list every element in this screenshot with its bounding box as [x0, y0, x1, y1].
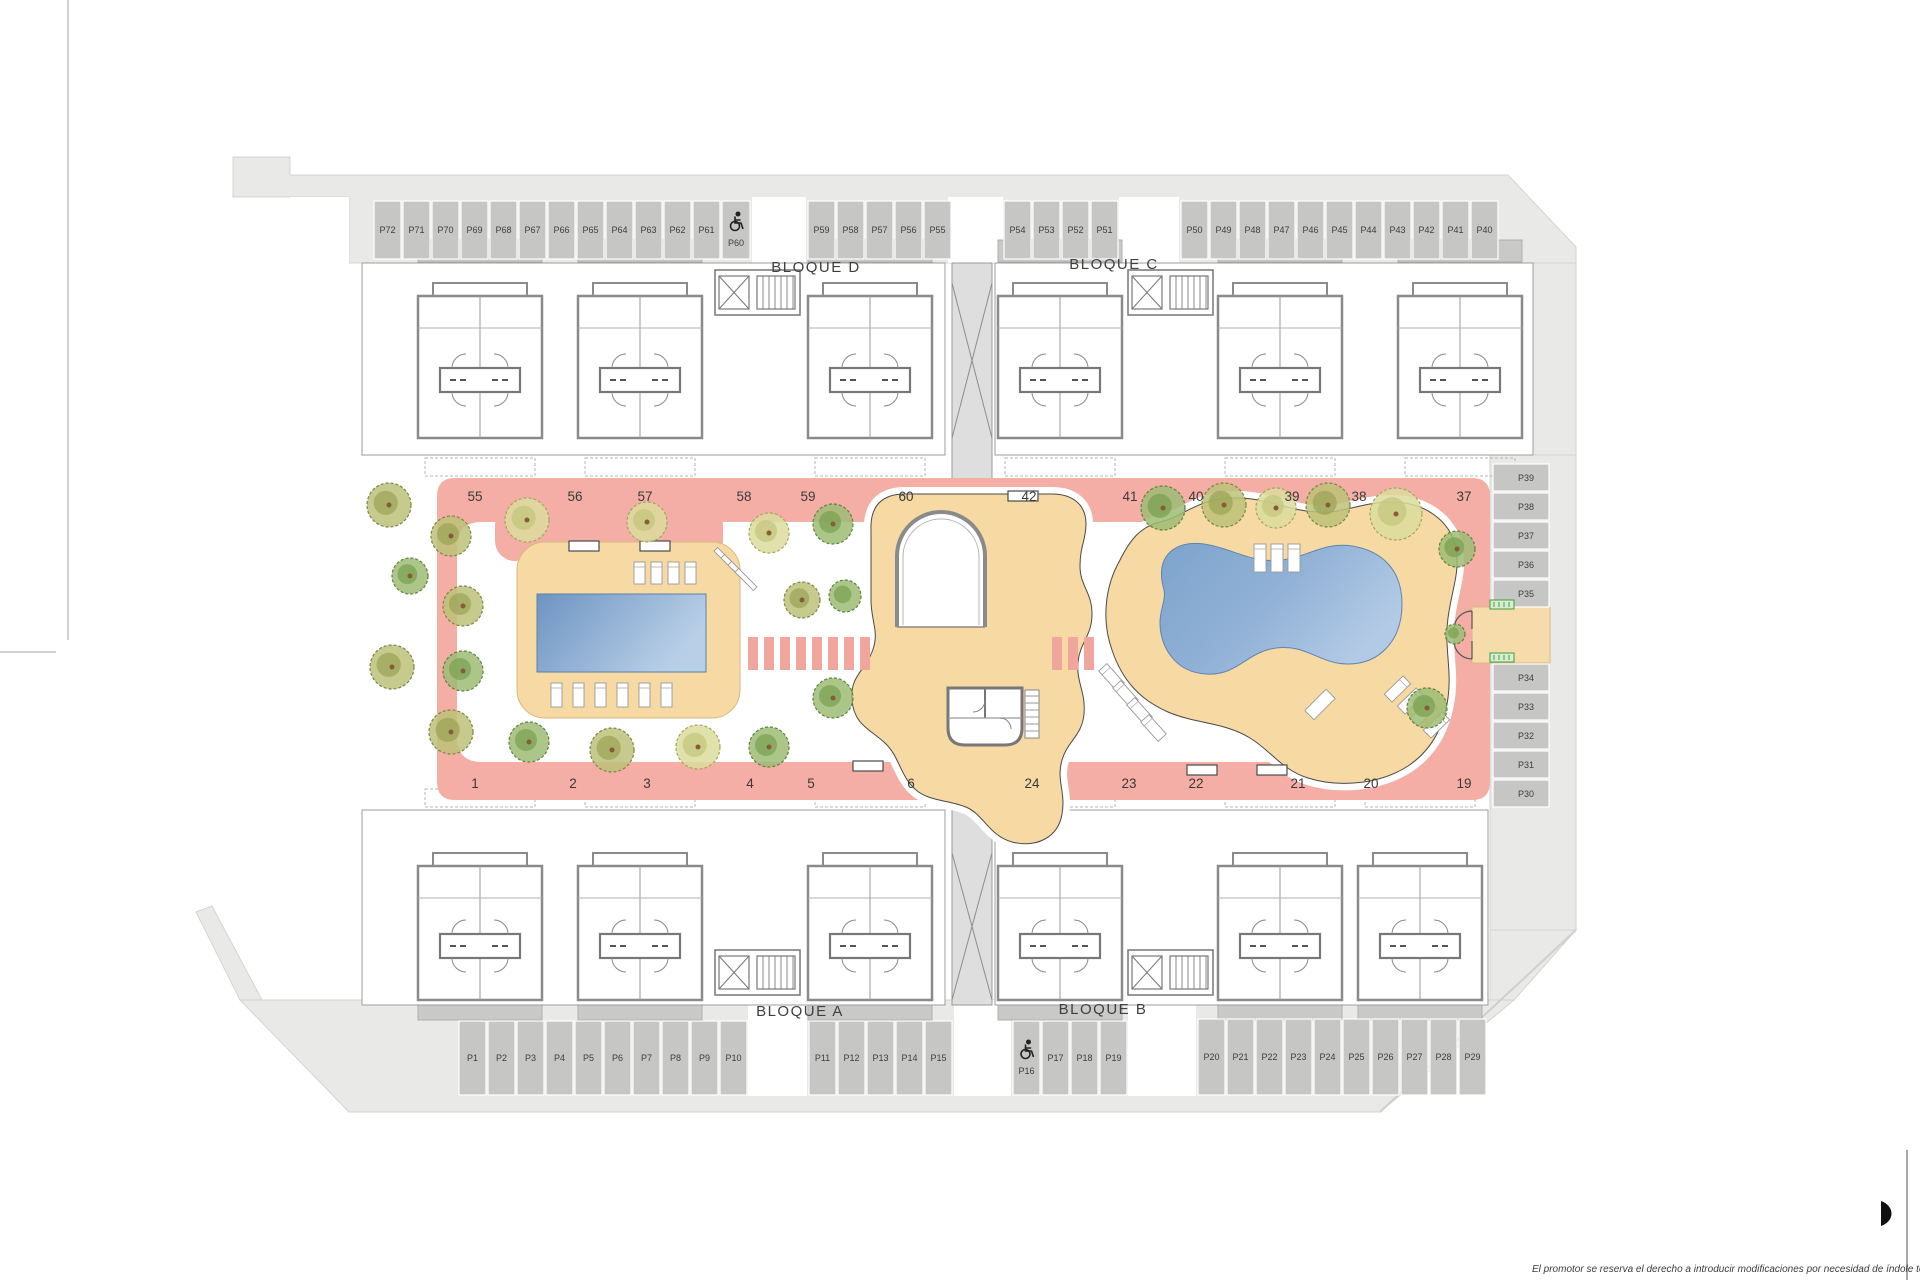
walkway-number: 23: [1121, 776, 1136, 791]
apartment-unit-pair: [578, 853, 702, 1000]
crosswalk-bar: [812, 637, 822, 670]
walkway-number: 41: [1122, 489, 1137, 504]
parking-stall-label: P11: [815, 1053, 830, 1063]
bench: [1257, 765, 1287, 775]
parking-stall-label: P50: [1186, 225, 1202, 235]
parking-stall-label: P39: [1518, 473, 1534, 483]
sun-lounger: [1271, 544, 1283, 572]
parking-stall-label: P67: [524, 225, 540, 235]
entrance-sign: [1490, 600, 1514, 609]
walkway-number: 56: [567, 489, 582, 504]
parking-stall-label: P49: [1215, 225, 1231, 235]
block-label-bloque-b: BLOQUE B: [1059, 1001, 1148, 1018]
stair-core: [1128, 270, 1213, 315]
tree: [431, 516, 471, 556]
tree: [1306, 483, 1350, 527]
terrace: [1005, 458, 1115, 476]
crosswalk-bar: [764, 637, 774, 670]
terrace: [425, 458, 535, 476]
parking-stall-label: P28: [1435, 1052, 1451, 1062]
parking-stall-label: P45: [1331, 225, 1347, 235]
parking-stall-label: P17: [1047, 1053, 1063, 1063]
terrace: [585, 458, 695, 476]
parking-stall-label: P42: [1418, 225, 1434, 235]
tree: [1370, 488, 1422, 540]
page-curl-mark: [1881, 1201, 1892, 1226]
parking-stall-label: P33: [1518, 702, 1534, 712]
crosswalk-bar: [844, 637, 854, 670]
parking-stall-label: P47: [1273, 225, 1289, 235]
tree: [813, 504, 853, 544]
walkway-number: 21: [1290, 776, 1305, 791]
site-plan-page: P72P71P70P69P68P67P66P65P64P63P62P61P60P…: [0, 0, 1920, 1280]
sun-lounger: [617, 683, 628, 707]
parking-stall-label: P23: [1290, 1052, 1306, 1062]
crosswalk-bar: [1068, 637, 1078, 670]
bench: [569, 541, 599, 551]
left-pool-area: [517, 542, 740, 718]
parking-stall-label: P4: [554, 1053, 565, 1063]
parking-stall-label: P3: [525, 1053, 536, 1063]
walkway-number: 19: [1456, 776, 1471, 791]
apartment-unit-pair: [1358, 853, 1482, 1000]
parking-stall-label: P21: [1232, 1052, 1248, 1062]
parking-stall-label: P20: [1203, 1052, 1219, 1062]
apartment-unit-pair: [418, 283, 542, 438]
parking-stall-label: P30: [1518, 789, 1534, 799]
sun-lounger: [573, 683, 584, 707]
parking-stall-label: P36: [1518, 560, 1534, 570]
crosswalk-bar: [780, 637, 790, 670]
walkway-number: 38: [1351, 489, 1366, 504]
sun-lounger: [639, 683, 650, 707]
walkway-number: 24: [1024, 776, 1040, 791]
sun-lounger: [551, 683, 562, 707]
parking-stall-label: P64: [611, 225, 627, 235]
parking-stall-label: P34: [1518, 673, 1534, 683]
tree: [1202, 483, 1246, 527]
sun-lounger: [634, 562, 645, 584]
walkway-number: 5: [807, 776, 815, 791]
bench: [853, 761, 883, 771]
bench: [640, 541, 670, 551]
apartment-unit-pair: [1218, 283, 1342, 438]
parking-stall-label: P32: [1518, 731, 1534, 741]
block-label-bloque-a: BLOQUE A: [756, 1003, 844, 1020]
apartment-unit-pair: [808, 283, 932, 438]
tree: [1445, 624, 1465, 644]
parking-stall-label: P43: [1389, 225, 1405, 235]
walkway-number: 40: [1188, 489, 1203, 504]
parking-stall-label: P5: [583, 1053, 594, 1063]
apartment-unit-pair: [1398, 283, 1522, 438]
walkway-number: 3: [643, 776, 651, 791]
walkway-number: 4: [746, 776, 754, 791]
parking-stall-label: P58: [842, 225, 858, 235]
tree: [813, 678, 853, 718]
sun-lounger: [661, 683, 672, 707]
walkway-number: 57: [637, 489, 652, 504]
apartment-unit-pair: [808, 853, 932, 1000]
tree: [749, 513, 789, 553]
parking-stall-label: P9: [699, 1053, 710, 1063]
parking-stall-label: P26: [1377, 1052, 1393, 1062]
parking-stall-label: P6: [612, 1053, 623, 1063]
parking-group-right-col-a: P39P38P37P36P35: [1493, 464, 1549, 607]
parking-stall-label: P68: [495, 225, 511, 235]
entrance-sign: [1490, 653, 1514, 662]
sun-lounger: [651, 562, 662, 584]
walkway-number: 58: [736, 489, 751, 504]
parking-stall-label: P37: [1518, 531, 1534, 541]
parking-stall-label: P27: [1406, 1052, 1422, 1062]
parking-stall-label: P35: [1518, 589, 1534, 599]
parking-stall-label: P14: [901, 1053, 917, 1063]
terrace: [1225, 458, 1335, 476]
parking-group-right-col-b: P34P33P32P31P30: [1493, 664, 1549, 807]
parking-stall-label: P7: [641, 1053, 652, 1063]
tree: [370, 645, 414, 689]
street-band-right-upper: [1533, 263, 1576, 455]
parking-stall-label: P13: [872, 1053, 888, 1063]
parking-stall-label: P18: [1076, 1053, 1092, 1063]
parking-stall-label: P60: [728, 238, 744, 248]
tree: [829, 580, 861, 612]
stair-core: [1128, 950, 1213, 995]
tree: [590, 728, 634, 772]
parking-stall-label: P2: [496, 1053, 507, 1063]
walkway-number: 37: [1456, 489, 1471, 504]
tree: [749, 727, 789, 767]
tree: [367, 483, 411, 527]
parking-group-top-row-d: P50P49P48P47P46P45P44P43P42P41P40: [1181, 201, 1498, 259]
tree: [1407, 688, 1447, 728]
parking-stall-label: P31: [1518, 760, 1534, 770]
parking-stall-label: P8: [670, 1053, 681, 1063]
crosswalk-bar: [828, 637, 838, 670]
tree: [392, 558, 428, 594]
crosswalk-bar: [748, 637, 758, 670]
sun-lounger: [685, 562, 696, 584]
stair-core: [715, 950, 800, 995]
apartment-unit-pair: [578, 283, 702, 438]
walkway-number: 2: [569, 776, 577, 791]
walkway-number: 55: [467, 489, 482, 504]
street-band-bottom-left-wedge: [196, 906, 262, 1000]
sun-lounger: [1141, 715, 1167, 742]
arched-structure: [897, 512, 985, 627]
parking-stall-label: P41: [1447, 225, 1463, 235]
tree: [627, 502, 667, 542]
block-label-bloque-d: BLOQUE D: [771, 259, 861, 276]
parking-stall-label: P65: [582, 225, 598, 235]
sun-lounger: [1288, 544, 1300, 572]
parking-stall-label: P56: [900, 225, 916, 235]
apartment-unit-pair: [998, 853, 1122, 1000]
left-pool: [537, 594, 706, 672]
street-band-corner-join: [1490, 930, 1576, 1000]
walkway-number: 20: [1363, 776, 1378, 791]
parking-stall-label: P40: [1476, 225, 1492, 235]
parking-stall-label: P57: [871, 225, 887, 235]
tree: [509, 722, 549, 762]
parking-stall-label: P1: [467, 1053, 478, 1063]
parking-stall-label: P24: [1319, 1052, 1335, 1062]
parking-stall-label: P16: [1018, 1066, 1034, 1076]
site-plan: P72P71P70P69P68P67P66P65P64P63P62P61P60P…: [0, 0, 1920, 1280]
tree: [784, 582, 820, 618]
crosswalk-bar: [1084, 637, 1094, 670]
tree: [1439, 531, 1475, 567]
parking-stall-label: P70: [437, 225, 453, 235]
parking-stall-label: P62: [669, 225, 685, 235]
apartment-unit-pair: [1218, 853, 1342, 1000]
crosswalk-bar: [796, 637, 806, 670]
parking-stall-label: P25: [1348, 1052, 1364, 1062]
apartment-unit-pair: [998, 283, 1122, 438]
tree: [505, 498, 549, 542]
parking-stall-label: P38: [1518, 502, 1534, 512]
parking-stall-label: P69: [466, 225, 482, 235]
parking-stall-label: P46: [1302, 225, 1318, 235]
walkway-number: 39: [1284, 489, 1299, 504]
parking-stall-label: P22: [1261, 1052, 1277, 1062]
parking-stall-label: P29: [1464, 1052, 1480, 1062]
terrace: [815, 458, 925, 476]
parking-stall-label: P59: [813, 225, 829, 235]
parking-stall-label: P66: [553, 225, 569, 235]
parking-group-top-row-hc: P60: [722, 201, 750, 259]
tree: [443, 651, 483, 691]
tree: [443, 586, 483, 626]
apartment-unit-pair: [418, 853, 542, 1000]
block-label-bloque-c: BLOQUE C: [1069, 256, 1159, 273]
walkway-number: 22: [1188, 776, 1203, 791]
crosswalk-bar: [860, 637, 870, 670]
parking-group-top-row-b: P59P58P57P56P55: [808, 201, 951, 259]
parking-stall-label: P63: [640, 225, 656, 235]
parking-stall-label: P19: [1105, 1053, 1121, 1063]
parking-stall-label: P10: [725, 1053, 741, 1063]
parking-stall-label: P51: [1096, 225, 1112, 235]
parking-stall-label: P44: [1360, 225, 1376, 235]
parking-stall-label: P15: [930, 1053, 946, 1063]
parking-stall-label: P55: [929, 225, 945, 235]
stair-core: [715, 270, 800, 315]
parking-stall-label: P54: [1009, 225, 1025, 235]
parking-stall-label: P61: [698, 225, 714, 235]
tree: [429, 710, 473, 754]
disclaimer-text: El promotor se reserva el derecho a intr…: [1532, 1264, 1920, 1275]
parking-stall-label: P48: [1244, 225, 1260, 235]
walkway-number: 6: [907, 776, 915, 791]
parking-group-bottom-row-b: P11P12P13P14P15: [809, 1021, 952, 1095]
parking-stall-label: P12: [843, 1053, 859, 1063]
walkway-number: 60: [898, 489, 913, 504]
walkway-number: 1: [471, 776, 479, 791]
walkway-number: 59: [800, 489, 815, 504]
sun-lounger: [595, 683, 606, 707]
parking-stall-label: P71: [408, 225, 424, 235]
tree: [1141, 486, 1185, 530]
walkway-number: 42: [1021, 489, 1036, 504]
bench: [1187, 765, 1217, 775]
crosswalk-bar: [1052, 637, 1062, 670]
tree: [676, 725, 720, 769]
parking-stall-label: P53: [1038, 225, 1054, 235]
parking-stall-label: P72: [379, 225, 395, 235]
sun-lounger: [668, 562, 679, 584]
sun-lounger: [1254, 544, 1266, 572]
parking-stall-label: P52: [1067, 225, 1083, 235]
